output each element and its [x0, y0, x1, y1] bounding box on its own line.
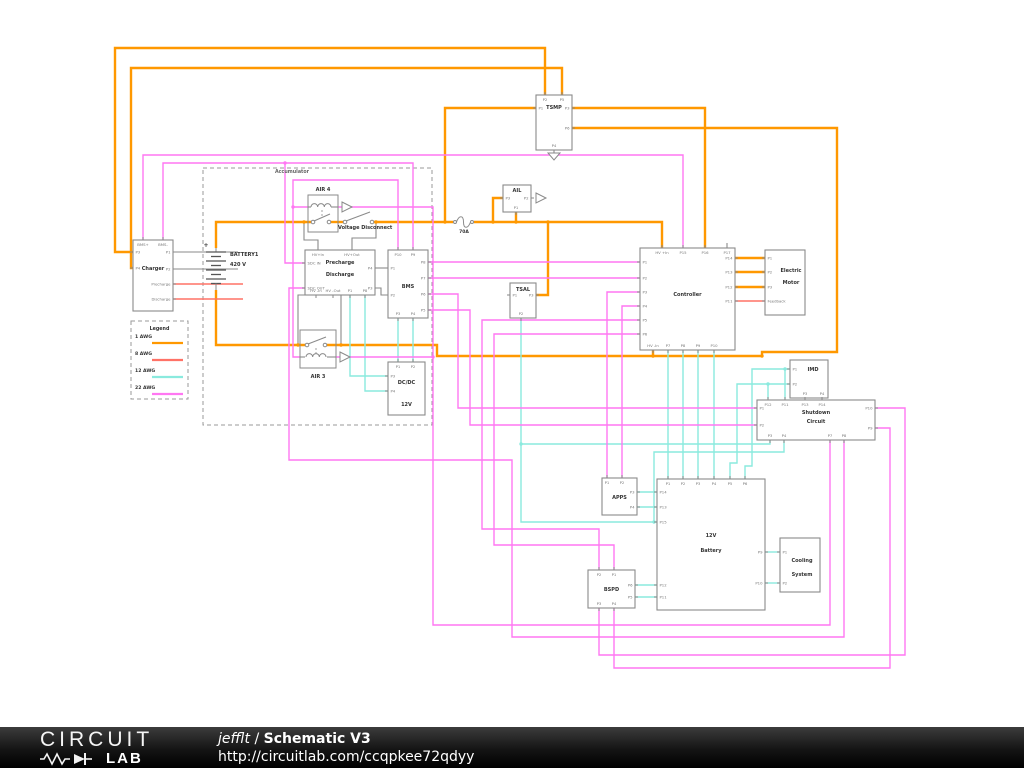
- pin-label: HV -Out: [325, 288, 341, 293]
- ail-arrow-icon: [536, 193, 546, 203]
- junction-dot: [283, 161, 286, 164]
- block-title: APPS: [612, 495, 627, 501]
- pin-label: P1: [666, 481, 671, 486]
- symbol-label: AIR 4: [316, 187, 331, 193]
- pin-label: P13: [725, 270, 733, 275]
- pin-label: HV+In: [312, 252, 325, 257]
- pin-label: P11: [781, 402, 789, 407]
- block-title: 12V: [706, 533, 717, 539]
- contact-terminal: [327, 220, 331, 224]
- block-bspd: BSPDP2P1P6P5P3P4: [588, 567, 638, 611]
- pin-label: P6: [421, 292, 426, 297]
- block-bms: BMSP10P9P1P2P8P7P6P5P3P4: [385, 247, 431, 321]
- ground-icon: [548, 153, 560, 160]
- pin-label: P1: [396, 364, 401, 369]
- pin-label: BMS-: [158, 242, 168, 247]
- switch-lever: [308, 337, 326, 344]
- fuse-terminal: [471, 221, 474, 224]
- block-title: Circuit: [807, 419, 826, 425]
- pin-label: P3: [529, 293, 534, 298]
- author-link[interactable]: jefflt: [218, 731, 250, 747]
- pin-label: Discharge: [151, 297, 171, 302]
- pin-label: P1: [783, 550, 788, 555]
- block-title: Motor: [783, 280, 800, 286]
- switch-lever: [346, 212, 370, 221]
- pin-label: P2: [597, 572, 602, 577]
- air4-relay[interactable]: [308, 195, 338, 232]
- pin-label: HV+Out: [344, 252, 360, 257]
- pin-label: P1: [539, 106, 544, 111]
- pin-label: P5: [628, 595, 633, 600]
- pin-label: P15: [660, 520, 668, 525]
- block-title: Electric: [780, 268, 801, 274]
- pin-label: P3: [391, 374, 396, 379]
- block-title: AIL: [513, 188, 523, 194]
- legend-title: Legend: [150, 326, 170, 332]
- pin-label: P4: [391, 389, 396, 394]
- pin-label: P2: [783, 581, 788, 586]
- pin-label: P7: [828, 433, 833, 438]
- wire-awg22[interactable]: [494, 334, 640, 570]
- wire-awg1[interactable]: [493, 198, 503, 222]
- pin-label: SDC IN: [308, 261, 321, 266]
- pin-label: P5: [560, 97, 565, 102]
- block-apps: APPSP1P2P3P4: [602, 475, 640, 515]
- pin-label: P13: [660, 505, 668, 510]
- pin-label: P2: [643, 276, 648, 281]
- pin-label: P1: [166, 250, 171, 255]
- pin-label: Feedback: [768, 299, 787, 304]
- pin-label: P4: [712, 481, 717, 486]
- pin-label: HV -In: [310, 288, 322, 293]
- pin-label: P13: [801, 402, 809, 407]
- symbol-label: +: [203, 242, 208, 249]
- block-body-tsmp[interactable]: [536, 95, 572, 150]
- pin-label: P1: [513, 293, 518, 298]
- junction-dot: [339, 343, 342, 346]
- block-title: 12V: [401, 402, 412, 408]
- pin-label: P8: [363, 288, 368, 293]
- air4-arrow-icon: [342, 202, 352, 212]
- pin-label: P4: [552, 143, 557, 148]
- byline-separator: /: [250, 731, 264, 747]
- logo-word-lab: LAB: [106, 751, 143, 766]
- pin-label: P11: [660, 595, 668, 600]
- block-title: Shutdown: [802, 410, 831, 416]
- block-title: BMS: [402, 284, 415, 290]
- block-ail: AILP3P2P1: [500, 185, 534, 215]
- pin-label: P5: [728, 481, 733, 486]
- block-motor: ElectricMotorP1P2P3Feedback: [762, 250, 805, 315]
- pin-label: P4: [820, 391, 825, 396]
- fuse-70a[interactable]: [457, 217, 471, 228]
- pin-label: P12: [725, 285, 733, 290]
- symbol-label: Accumulator: [275, 169, 310, 175]
- junction-dot: [514, 220, 517, 223]
- block-title: Charger: [142, 266, 165, 272]
- pin-label: P3: [768, 433, 773, 438]
- pin-label: P4: [630, 505, 635, 510]
- symbol-label: AIR 3: [311, 374, 326, 380]
- pin-label: P10: [865, 406, 873, 411]
- pin-label: P2: [166, 267, 171, 272]
- pin-label: P7: [421, 276, 426, 281]
- block-body-controller[interactable]: [640, 248, 735, 350]
- block-imd: IMDP1P2P3P4: [787, 360, 828, 401]
- relay-coil-icon: [306, 354, 326, 357]
- pin-label: HV +In: [655, 250, 669, 255]
- legend-item-label: 1 AWG: [135, 334, 152, 340]
- pin-label: P9: [411, 252, 416, 257]
- block-body-batt12v[interactable]: [657, 479, 765, 610]
- relay-coil-icon: [311, 204, 331, 207]
- footer-bar: CIRCUIT LAB jefflt / Schematic V3 http:/…: [0, 727, 1024, 768]
- pin-label: P9: [696, 343, 701, 348]
- block-title: Battery: [700, 548, 722, 554]
- pin-label: P1: [760, 406, 765, 411]
- block-title: Discharge: [326, 272, 355, 278]
- pin-label: P2: [543, 97, 548, 102]
- schematic-title: Schematic V3: [264, 731, 371, 747]
- pin-label: P3: [136, 250, 141, 255]
- symbol-label: BATTERY1: [230, 252, 259, 258]
- junction-dot: [374, 220, 377, 223]
- pin-label: P1: [793, 367, 798, 372]
- block-title: IMD: [808, 367, 819, 373]
- block-title: BSPD: [604, 587, 619, 593]
- schematic-byline: jefflt / Schematic V3: [218, 731, 474, 747]
- junction-dot: [431, 355, 434, 358]
- junction-dot: [519, 442, 522, 445]
- wire-awg12[interactable]: [521, 440, 770, 444]
- pin-label: P10: [710, 343, 718, 348]
- air3-relay[interactable]: [300, 330, 336, 368]
- block-title: DC/DC: [398, 380, 416, 386]
- pin-label: P15: [679, 250, 687, 255]
- block-precharge: PrechargeDischargeHV+InHV+OutSDC INSDC O…: [302, 247, 378, 298]
- junction-dot: [651, 354, 654, 357]
- block-title: System: [792, 572, 813, 578]
- pin-label: P4: [612, 601, 617, 606]
- block-title: Cooling: [791, 558, 813, 564]
- pin-label: Precharge: [151, 282, 171, 287]
- pin-label: P10: [755, 581, 763, 586]
- wire-awg22[interactable]: [482, 320, 640, 570]
- symbol-label: 70A: [459, 229, 469, 235]
- pin-label: P3: [368, 286, 373, 291]
- circuitlab-screenshot: AIR 4AIR 3Voltage Disconnect70AAccumulat…: [0, 0, 1024, 768]
- pin-label: P3: [643, 290, 648, 295]
- circuitlab-logo: CIRCUIT LAB: [40, 729, 190, 767]
- pin-label: P5: [643, 318, 648, 323]
- block-shutdown: ShutdownCircuitP12P11P13P14P1P2P10P9P3P4…: [754, 397, 878, 443]
- pin-label: P3: [506, 196, 511, 201]
- wire-awg22[interactable]: [622, 306, 640, 478]
- pin-label: P10: [394, 252, 402, 257]
- pin-label: P1: [768, 256, 773, 261]
- fuse-terminal: [454, 221, 457, 224]
- pin-label: P17: [723, 250, 731, 255]
- pin-label: P2: [768, 270, 773, 275]
- wire-awg22[interactable]: [285, 163, 305, 263]
- block-batt12v: 12VBatteryP1P2P3P4P5P6P14P13P15P12P11P9P…: [654, 476, 768, 610]
- wire-plain[interactable]: [298, 295, 316, 345]
- contact-terminal: [370, 220, 374, 224]
- junction-dot: [760, 354, 763, 357]
- pin-label: P1: [348, 288, 353, 293]
- pin-label: P2: [760, 423, 765, 428]
- pin-label: P1: [514, 205, 519, 210]
- block-title: Precharge: [326, 260, 355, 266]
- junction-dot: [783, 367, 786, 370]
- wire-plain[interactable]: [333, 295, 341, 345]
- pin-label: P1: [391, 266, 396, 271]
- pin-label: P6: [643, 332, 648, 337]
- pin-label: P2: [620, 480, 625, 485]
- junction-dot: [491, 220, 494, 223]
- legend-item-label: 8 AWG: [135, 351, 152, 357]
- symbol-label: Voltage Disconnect: [338, 225, 393, 231]
- pin-label: P9: [868, 426, 873, 431]
- wire-awg22[interactable]: [293, 207, 300, 357]
- schematic-canvas: AIR 4AIR 3Voltage Disconnect70AAccumulat…: [0, 0, 1024, 728]
- pin-label: P1: [643, 260, 648, 265]
- logo-word-circuit: CIRCUIT: [40, 729, 190, 750]
- air3-arrow-icon: [340, 352, 350, 362]
- block-charger: ChargerBMS+BMS-P3P4P1P2PrechargeDischarg…: [130, 237, 176, 311]
- junction-dot: [546, 220, 549, 223]
- pin-label: P3: [630, 490, 635, 495]
- pin-label: P3: [565, 106, 570, 111]
- pin-label: P2: [681, 481, 686, 486]
- wire-awg1[interactable]: [474, 222, 662, 248]
- pin-label: P2: [793, 382, 798, 387]
- pin-label: P12: [764, 402, 772, 407]
- pin-label: P6: [743, 481, 748, 486]
- pin-label: P7: [666, 343, 671, 348]
- junction-dot: [296, 343, 299, 346]
- pin-label: P4: [782, 433, 787, 438]
- wire-plain[interactable]: [375, 288, 388, 295]
- schematic-url[interactable]: http://circuitlab.com/ccqpkee72qdyy: [218, 749, 474, 765]
- wire-awg12[interactable]: [350, 295, 388, 376]
- pin-label: P6: [628, 583, 633, 588]
- junction-dot: [443, 220, 446, 223]
- block-controller: ControllerHV +InP15P16P17P1P2P3P4P5P6P14…: [637, 245, 738, 353]
- pin-label: P8: [681, 343, 686, 348]
- pin-label: P2: [391, 293, 396, 298]
- pin-label: P2: [524, 196, 529, 201]
- pin-label: P14: [818, 402, 826, 407]
- block-tsmp: TSMPP2P5P1P3P6P4: [533, 92, 575, 153]
- pin-label: P4: [136, 266, 141, 271]
- pin-label: P14: [725, 256, 733, 261]
- junction-dot: [291, 205, 294, 208]
- pin-label: P8: [842, 433, 847, 438]
- footer-meta: jefflt / Schematic V3 http://circuitlab.…: [218, 731, 474, 765]
- pin-label: P1: [612, 572, 617, 577]
- pin-label: P6: [565, 126, 570, 131]
- block-cooling: CoolingSystemP1P2: [777, 538, 820, 592]
- wire-plain[interactable]: [304, 222, 318, 250]
- pin-label: P8: [421, 260, 426, 265]
- junction-dot: [766, 382, 769, 385]
- legend-item-label: 22 AWG: [135, 385, 155, 391]
- pin-label: P12: [660, 583, 668, 588]
- pin-label: P16: [701, 250, 709, 255]
- wire-awg1[interactable]: [216, 222, 311, 248]
- symbol-label: 420 V: [230, 262, 246, 268]
- pin-label: P2: [411, 364, 416, 369]
- block-title: Controller: [673, 292, 702, 298]
- pin-label: P11: [725, 299, 733, 304]
- legend-item-label: 12 AWG: [135, 368, 155, 374]
- pin-label: P4: [643, 304, 648, 309]
- pin-label: P3: [768, 285, 773, 290]
- contact-terminal: [323, 343, 327, 347]
- pin-label: P3: [696, 481, 701, 486]
- block-title: TSMP: [546, 105, 562, 111]
- pin-label: P2: [519, 311, 524, 316]
- pin-label: P3: [396, 311, 401, 316]
- pin-label: P3: [597, 601, 602, 606]
- pin-label: P4: [411, 311, 416, 316]
- pin-label: P4: [368, 266, 373, 271]
- pin-label: HV -In: [647, 343, 659, 348]
- pin-label: BMS+: [137, 242, 148, 247]
- block-dcdc: DC/DC12VP1P2P3P4: [385, 359, 425, 415]
- logo-resistor-diode-icon: [40, 751, 106, 767]
- junction-dot: [302, 220, 305, 223]
- pin-label: P9: [758, 550, 763, 555]
- pin-label: P3: [803, 391, 808, 396]
- pin-label: P14: [660, 490, 668, 495]
- legend: Legend1 AWG8 AWG12 AWG22 AWG: [135, 326, 183, 394]
- pin-label: P5: [421, 308, 426, 313]
- block-tsal: TSALP1P3P2: [507, 283, 539, 321]
- pin-label: P1: [605, 480, 610, 485]
